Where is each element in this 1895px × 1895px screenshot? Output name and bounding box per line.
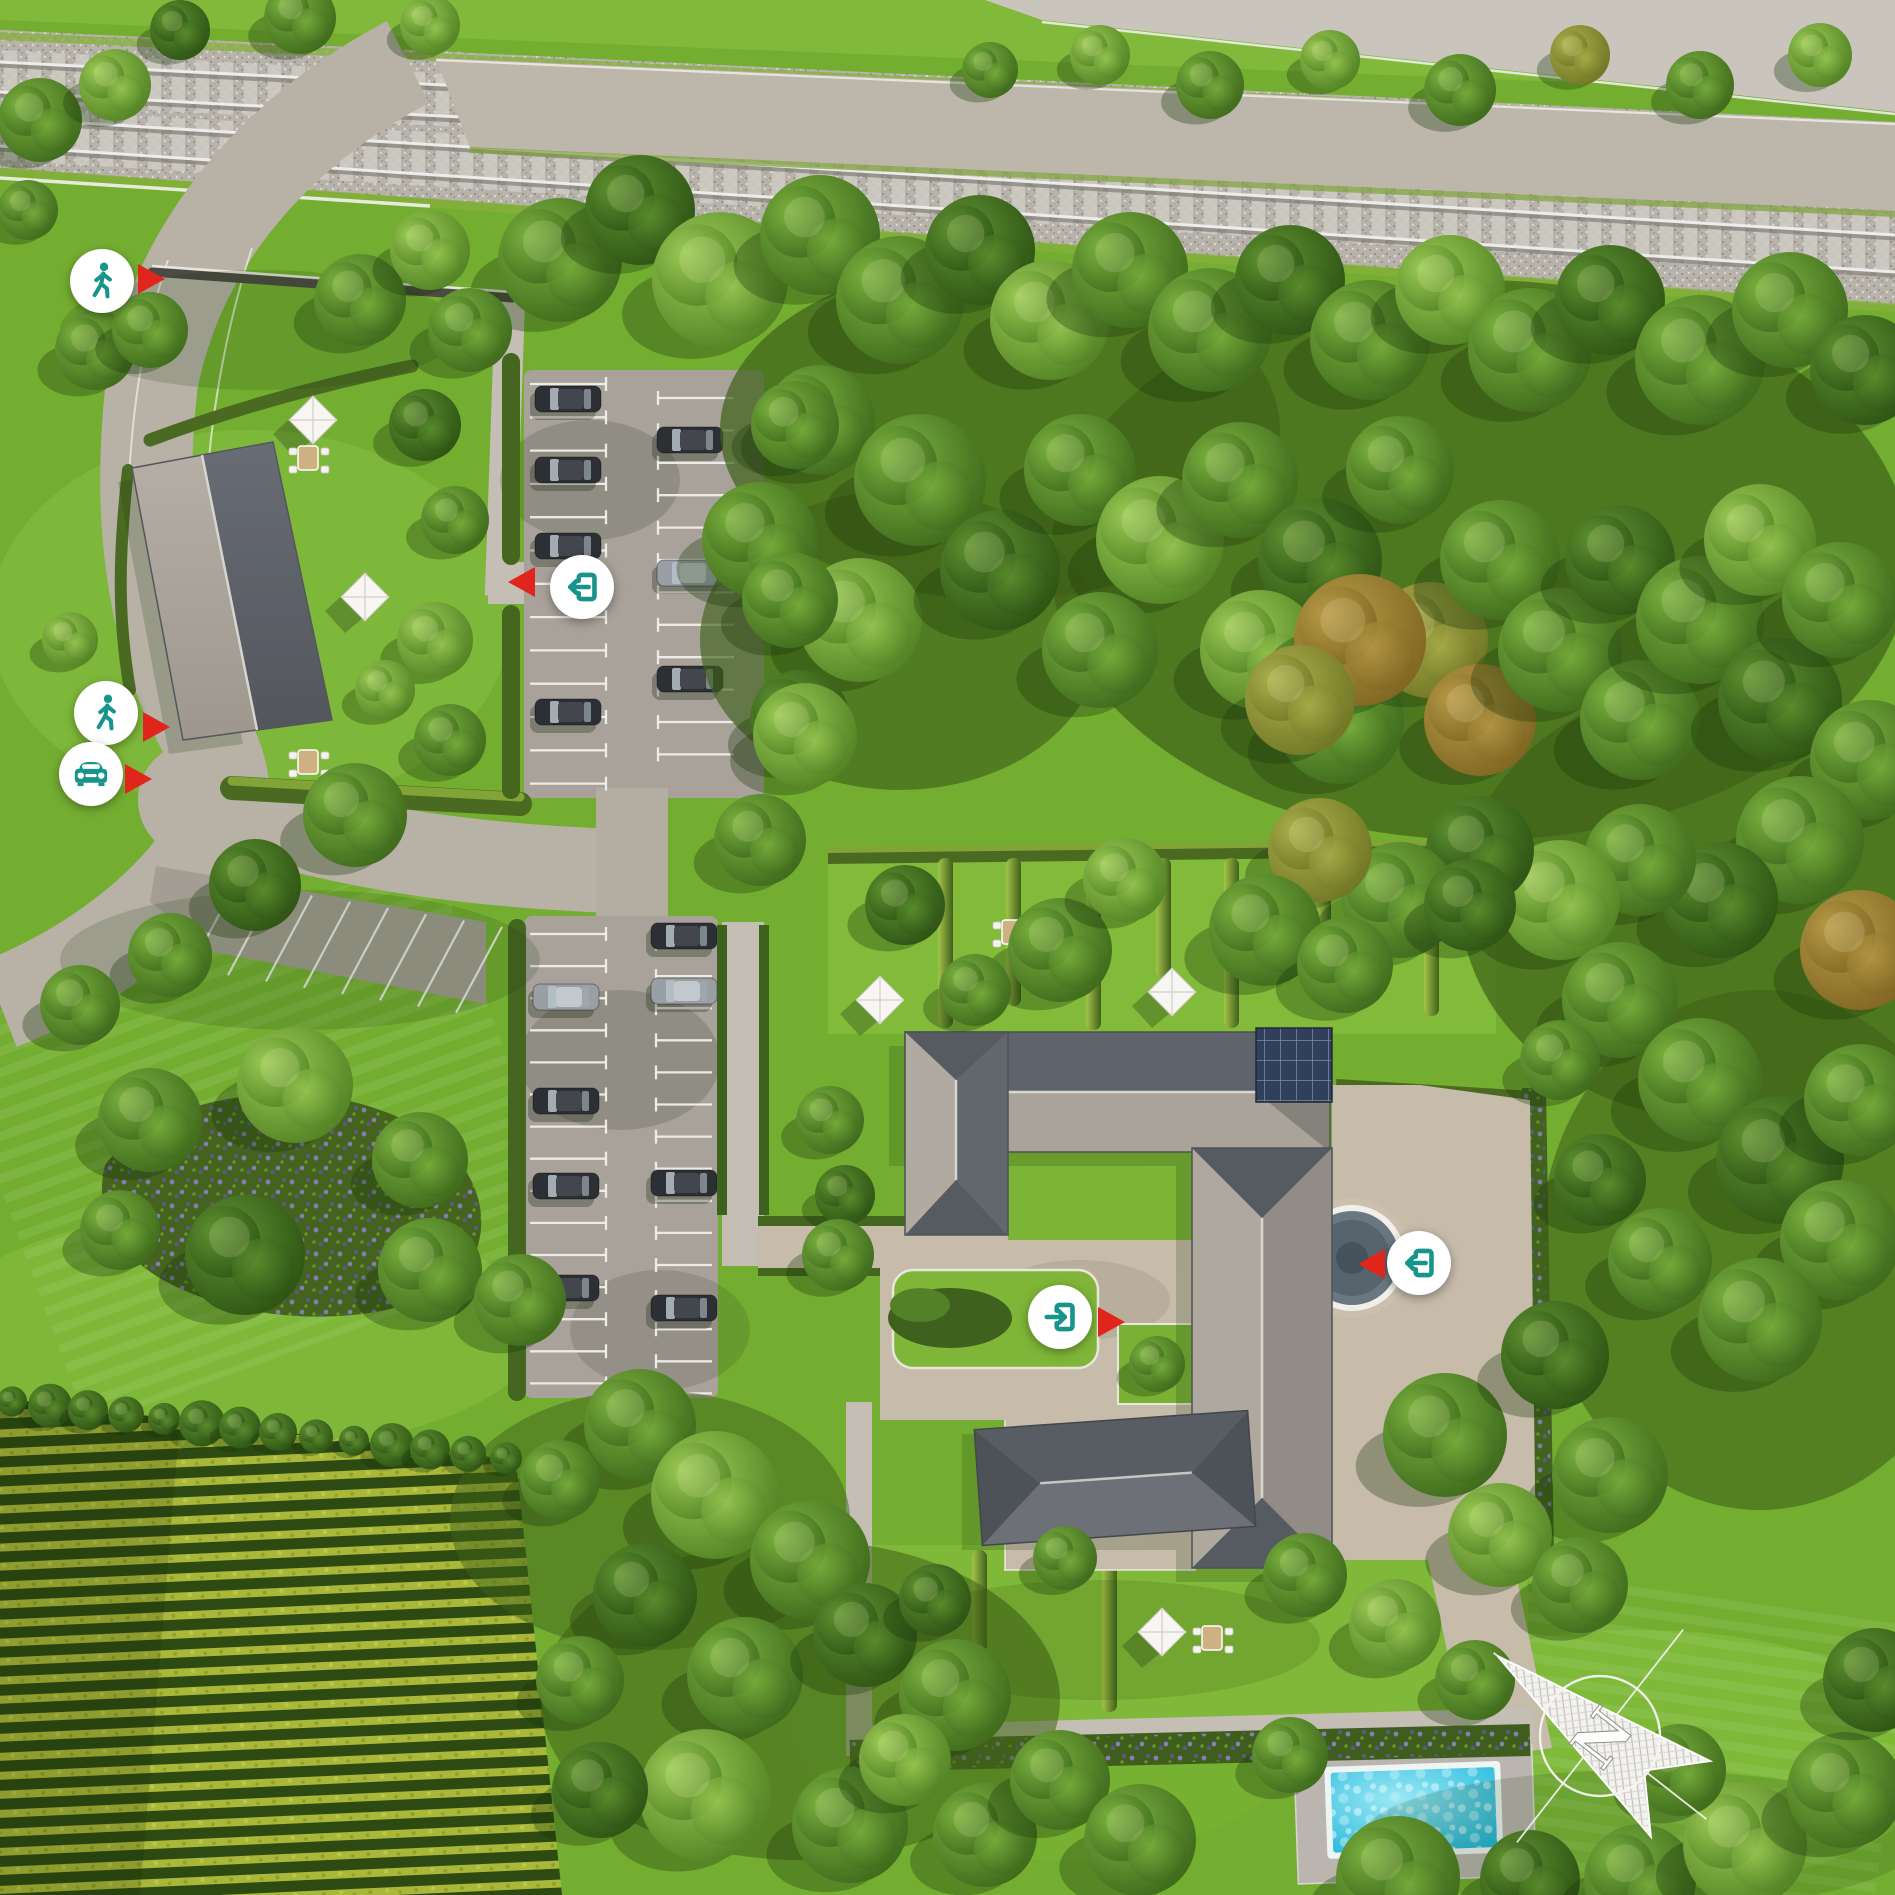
- parked-car: [646, 978, 717, 1012]
- direction-arrow: [125, 764, 152, 794]
- parked-car: [528, 984, 599, 1018]
- main-building-south-wing: [974, 1411, 1255, 1546]
- entrance-icon: [560, 565, 604, 609]
- car-icon: [69, 752, 113, 796]
- direction-arrow: [1098, 1307, 1125, 1337]
- parked-car: [652, 427, 723, 461]
- marker-pedestrian-access-west[interactable]: [74, 681, 138, 745]
- parked-car: [530, 699, 601, 733]
- marker-car-access-west[interactable]: [59, 742, 123, 806]
- site-plan: N: [0, 0, 1895, 1895]
- direction-arrow: [508, 567, 535, 597]
- entrance-icon: [1038, 1295, 1082, 1339]
- parked-car: [528, 1088, 599, 1122]
- direction-arrow: [1358, 1249, 1385, 1279]
- site-plan-canvas: N: [0, 0, 1895, 1895]
- entrance-icon: [1397, 1241, 1441, 1285]
- parked-car: [530, 386, 601, 420]
- pedestrian-icon: [84, 691, 128, 735]
- main-building-west-stub: [905, 1032, 1008, 1235]
- marker-pedestrian-access-north[interactable]: [70, 249, 134, 313]
- walkway: [722, 922, 764, 1222]
- solar-panels: [1256, 1028, 1332, 1102]
- parked-car: [646, 1170, 717, 1204]
- parked-car: [646, 923, 717, 957]
- direction-arrow: [138, 264, 165, 294]
- parked-car: [528, 1173, 599, 1207]
- marker-courtyard-entrance[interactable]: [1028, 1285, 1092, 1349]
- marker-parking-entrance[interactable]: [550, 555, 614, 619]
- marker-plaza-entrance[interactable]: [1387, 1231, 1451, 1295]
- direction-arrow: [143, 712, 170, 742]
- parked-car: [530, 457, 601, 491]
- parked-car: [646, 1295, 717, 1329]
- pedestrian-icon: [80, 259, 124, 303]
